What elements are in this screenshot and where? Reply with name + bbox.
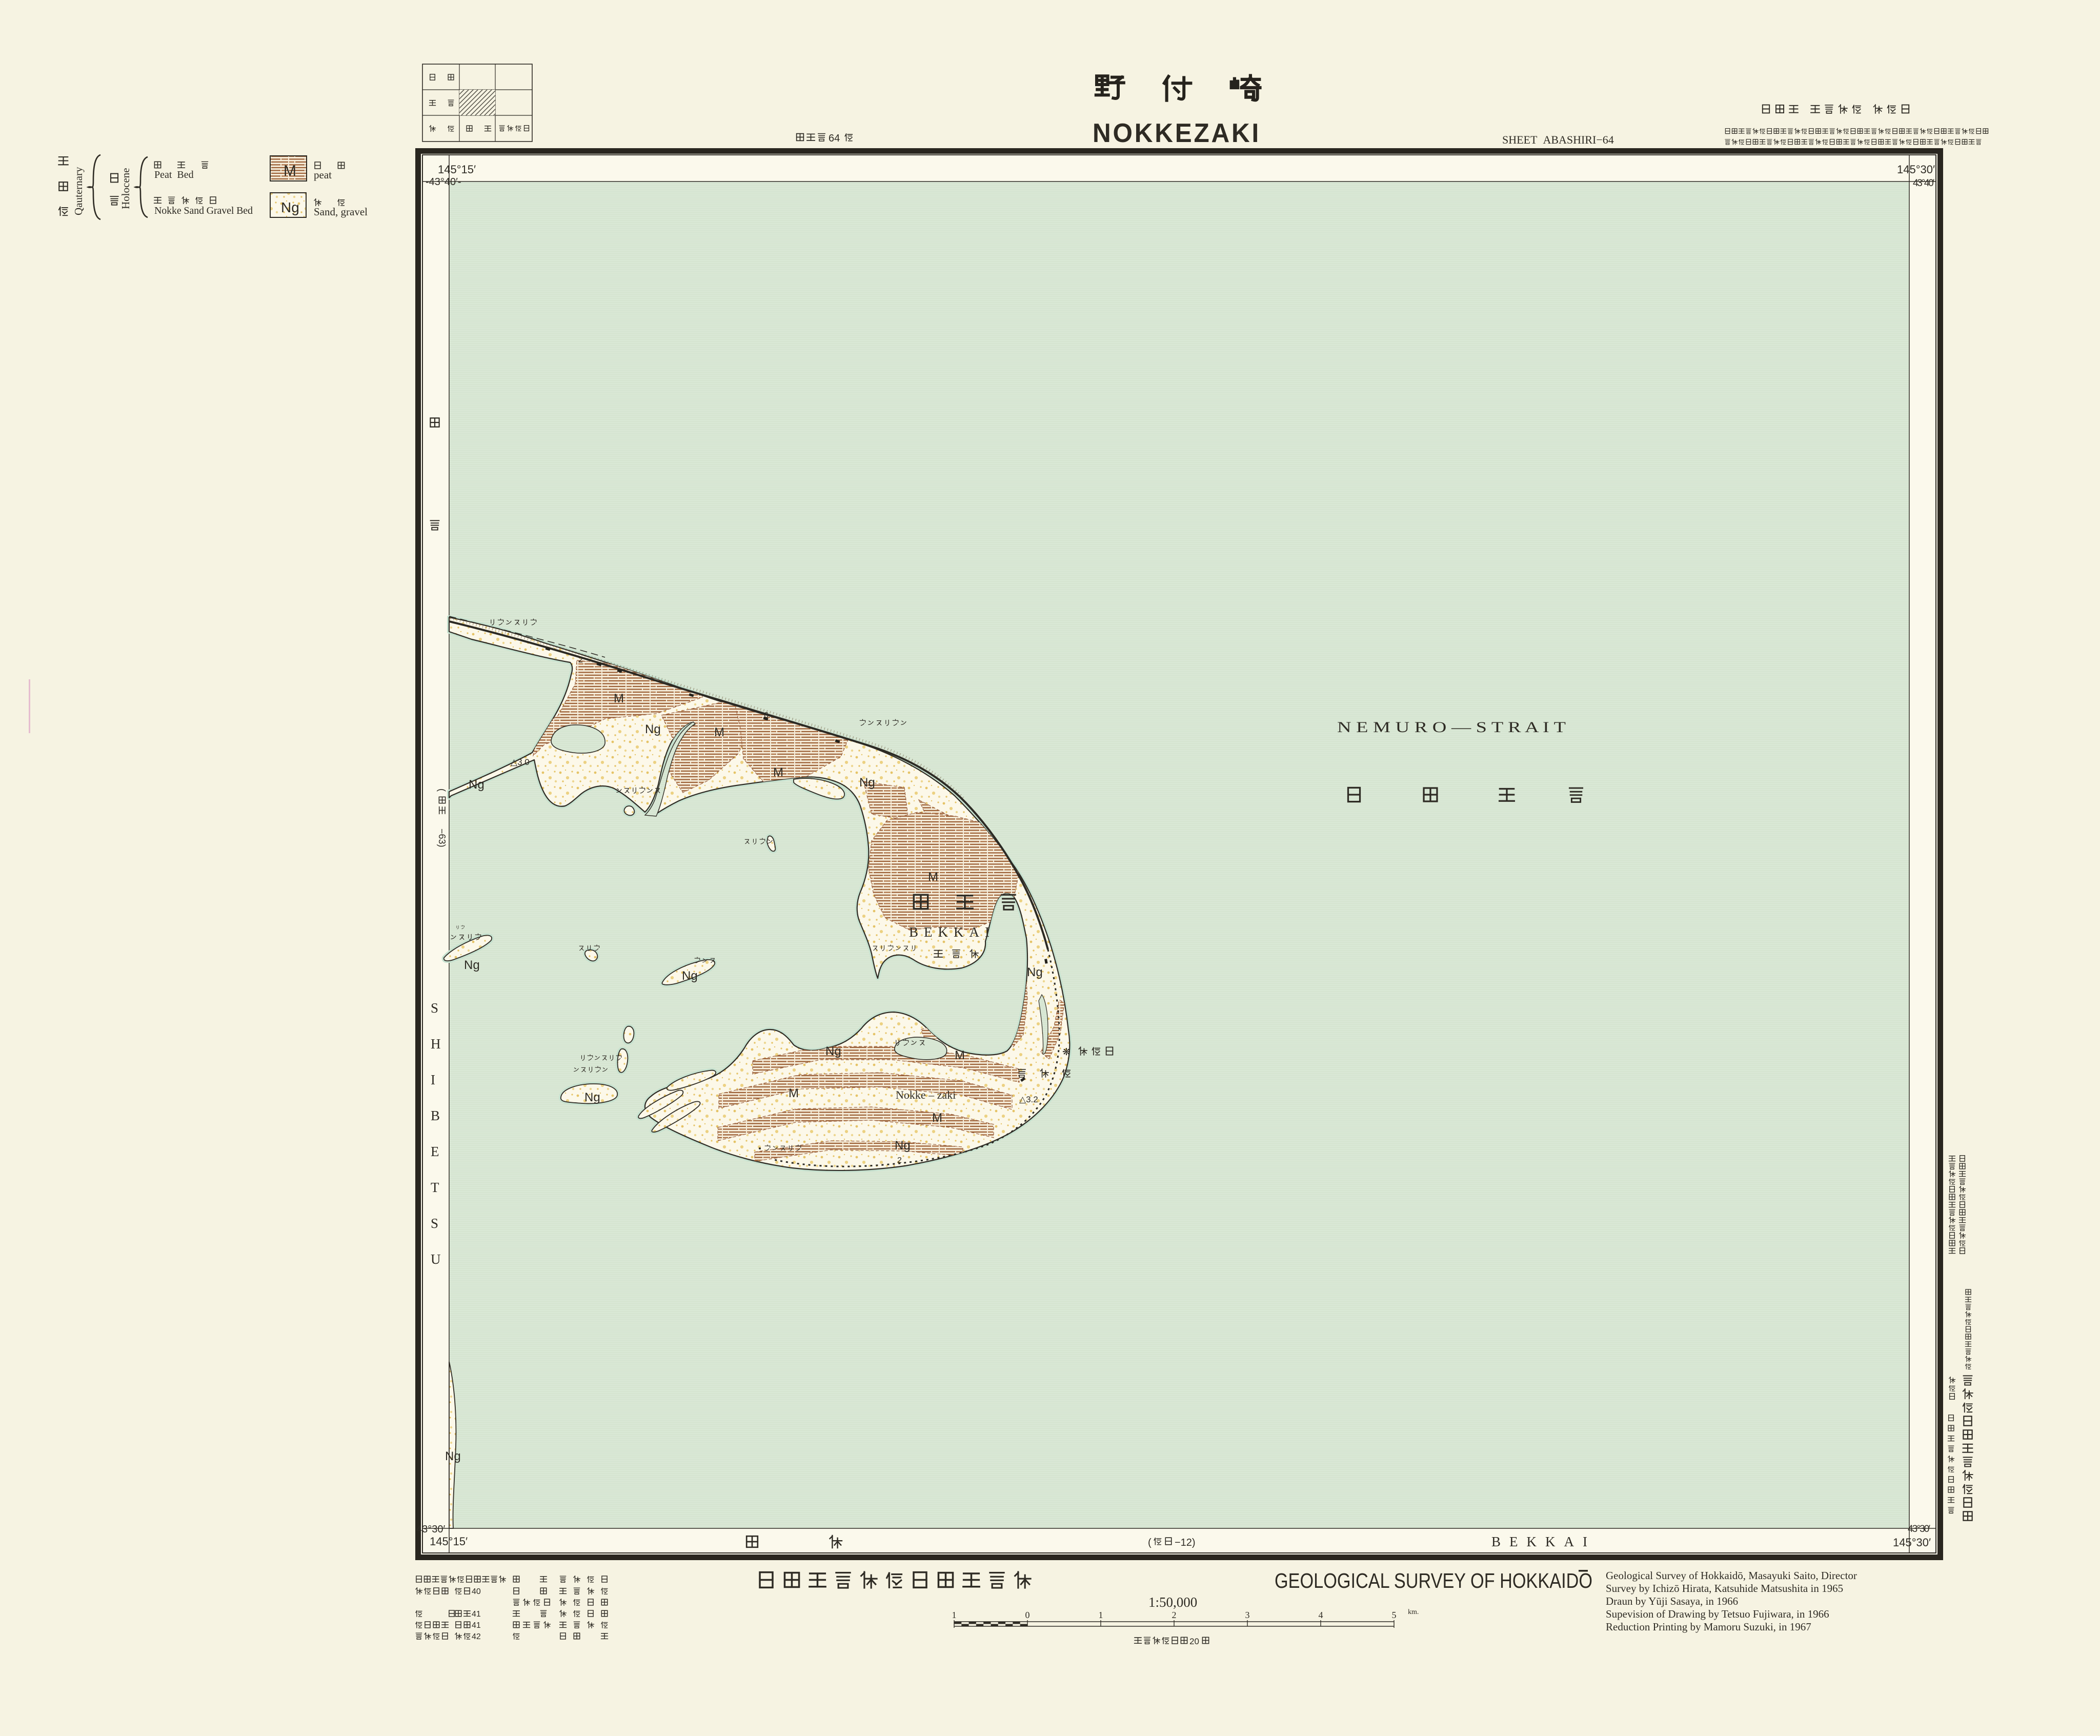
svg-text:Nokke Sand Gravel Bed: Nokke Sand Gravel Bed	[154, 205, 253, 216]
svg-text:peat: peat	[314, 169, 332, 181]
svg-text:T: T	[431, 1180, 439, 1195]
svg-text:M: M	[955, 1048, 965, 1062]
svg-text:2: 2	[1172, 1610, 1177, 1620]
svg-text:Ng: Ng	[682, 969, 698, 983]
svg-text:NOKKEZAKI: NOKKEZAKI	[1093, 118, 1261, 148]
svg-text:BEKKAI: BEKKAI	[909, 924, 995, 940]
svg-text:M: M	[928, 870, 938, 884]
svg-text:Ng: Ng	[281, 199, 299, 215]
svg-text:N E M U R O — S T R A I T: N E M U R O — S T R A I T	[1337, 719, 1566, 736]
svg-text:S: S	[431, 1216, 438, 1231]
svg-text:Ng: Ng	[584, 1091, 600, 1104]
svg-text:M: M	[773, 765, 783, 779]
svg-text:Supevision of Drawing by T: Supevision of Drawing by Tetsuo Fujiwara…	[1606, 1608, 1829, 1620]
svg-text:43°40′: 43°40′	[1913, 178, 1934, 189]
svg-text:BEKKAI: BEKKAI	[1491, 1534, 1596, 1549]
svg-text:Peat Bed: Peat Bed	[154, 169, 194, 180]
svg-text:43°30′: 43°30′	[416, 1524, 445, 1535]
svg-text:(: (	[437, 789, 447, 792]
svg-text:41: 41	[472, 1610, 481, 1619]
svg-text:20: 20	[1189, 1637, 1199, 1646]
svg-text:U: U	[431, 1251, 441, 1267]
svg-text:2: 2	[578, 656, 583, 664]
svg-text:(: (	[1148, 1537, 1152, 1548]
svg-text:145°30′: 145°30′	[1897, 163, 1935, 176]
svg-text:Ng: Ng	[469, 778, 484, 792]
svg-text:3: 3	[1245, 1610, 1250, 1620]
svg-text:145°15′: 145°15′	[438, 163, 476, 176]
svg-text:−63): −63)	[437, 829, 447, 847]
svg-text:Draun by Yūji Sasaya, in: Draun by Yūji Sasaya, in 1966	[1606, 1595, 1738, 1607]
svg-text:43°30′: 43°30′	[1908, 1524, 1930, 1535]
svg-text:5: 5	[1392, 1610, 1397, 1620]
svg-text:km.: km.	[1408, 1608, 1419, 1616]
svg-text:Qauternary: Qauternary	[72, 167, 85, 215]
svg-text:Nokke – zaki: Nokke – zaki	[896, 1088, 956, 1101]
svg-text:❋: ❋	[1062, 1047, 1071, 1058]
svg-text:64: 64	[829, 133, 840, 144]
svg-text:Sand, gravel: Sand, gravel	[314, 206, 368, 218]
svg-text:-43°40′-: -43°40′-	[426, 176, 461, 188]
svg-text:145°30′: 145°30′	[1893, 1536, 1931, 1549]
svg-text:Survey by Ichizō Hirata, K: Survey by Ichizō Hirata, Katsuhide Matsu…	[1606, 1582, 1843, 1594]
svg-text:Ng: Ng	[859, 776, 875, 790]
svg-text:△3.2: △3.2	[1019, 1095, 1038, 1104]
svg-text:Ng: Ng	[825, 1044, 841, 1058]
svg-text:4: 4	[1319, 1610, 1323, 1620]
svg-text:Geological Survey of Hokkai: Geological Survey of Hokkaidō, Masayuki …	[1606, 1569, 1857, 1582]
svg-text:Reduction Printing by Mamor: Reduction Printing by Mamoru Suzuki, in …	[1606, 1621, 1811, 1633]
svg-text:Ng: Ng	[445, 1449, 461, 1463]
svg-text:B: B	[431, 1108, 440, 1123]
svg-text:H: H	[431, 1036, 441, 1052]
svg-text:0: 0	[1025, 1610, 1030, 1620]
svg-text:Ng: Ng	[895, 1139, 911, 1153]
svg-text:M: M	[614, 692, 624, 705]
svg-text:Ng: Ng	[464, 958, 480, 972]
svg-text:1: 1	[952, 1610, 957, 1620]
svg-text:I: I	[431, 1072, 435, 1087]
svg-text:E: E	[431, 1144, 439, 1159]
svg-text:Holocene: Holocene	[119, 168, 132, 209]
svg-text:M: M	[789, 1086, 799, 1100]
svg-text:1:50,000: 1:50,000	[1148, 1594, 1197, 1610]
svg-text:40: 40	[472, 1587, 481, 1596]
svg-text:−12): −12)	[1175, 1537, 1196, 1548]
svg-text:145°15′: 145°15′	[430, 1535, 468, 1548]
svg-text:42: 42	[472, 1632, 481, 1641]
svg-text:41: 41	[472, 1621, 481, 1630]
svg-text:△3.0: △3.0	[511, 757, 530, 767]
svg-text:M: M	[714, 725, 724, 739]
svg-text:SHEET ABASHIRI−64: SHEET ABASHIRI−64	[1502, 133, 1614, 146]
svg-text:1: 1	[1099, 1610, 1103, 1620]
svg-text:GEOLOGICAL SURVEY OF HOKKAIDO: GEOLOGICAL SURVEY OF HOKKAIDO	[1275, 1569, 1592, 1592]
svg-text:S: S	[431, 1000, 438, 1016]
svg-text:6: 6	[764, 711, 769, 720]
svg-text:Ng: Ng	[645, 722, 661, 736]
svg-text:Ng: Ng	[1027, 965, 1043, 979]
svg-text:M: M	[932, 1111, 942, 1125]
svg-text:2: 2	[897, 1156, 902, 1165]
svg-text:M: M	[284, 163, 296, 179]
